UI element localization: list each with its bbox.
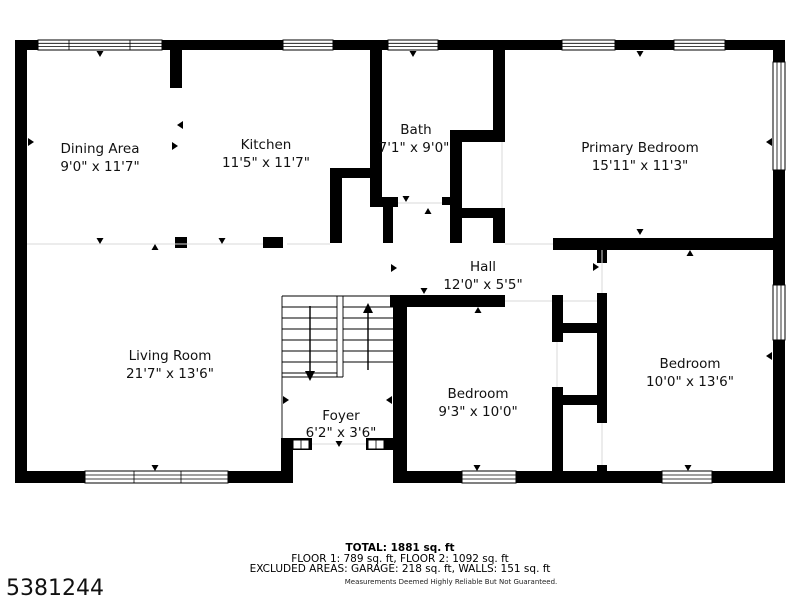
room-dims-primary: 15'11" x 11'3" [592, 158, 689, 174]
entry-sidelight-right [368, 440, 384, 449]
window-bedroom1 [462, 471, 516, 483]
stairs-down-arrow-icon [305, 306, 315, 381]
walls [15, 40, 785, 483]
room-dims-hall: 12'0" x 5'5" [443, 277, 522, 293]
window-primary-2 [674, 40, 725, 50]
room-dims-dining: 9'0" x 11'7" [60, 159, 139, 175]
windows [38, 40, 785, 483]
footer-excluded: EXCLUDED AREAS: GARAGE: 218 sq. ft, WALL… [250, 563, 551, 575]
room-label-dining: Dining Area [61, 141, 140, 157]
floorplan-page: Dining Area 9'0" x 11'7" Kitchen 11'5" x… [0, 0, 800, 600]
stairs-up-arrow-icon [363, 303, 373, 370]
room-label-kitchen: Kitchen [241, 137, 292, 153]
room-label-living: Living Room [129, 348, 212, 364]
room-dims-bedroom2: 10'0" x 13'6" [646, 374, 734, 390]
window-living [85, 471, 228, 483]
window-bedroom2 [662, 471, 712, 483]
footer-disclaimer: Measurements Deemed Highly Reliable But … [345, 578, 558, 586]
room-label-bath: Bath [400, 122, 431, 138]
floorplan-drawing: Dining Area 9'0" x 11'7" Kitchen 11'5" x… [0, 0, 800, 600]
window-bath [388, 40, 438, 50]
room-label-primary: Primary Bedroom [581, 140, 699, 156]
window-primary-side [773, 62, 785, 170]
room-label-hall: Hall [470, 259, 496, 275]
window-bedroom2-side [773, 285, 785, 340]
room-label-foyer: Foyer [322, 408, 360, 424]
room-dims-bedroom1: 9'3" x 10'0" [438, 404, 517, 420]
room-dims-bath: 7'1" x 9'0" [379, 140, 450, 156]
room-dims-foyer: 6'2" x 3'6" [306, 425, 377, 441]
room-label-bedroom1: Bedroom [447, 386, 508, 402]
listing-id: 5381244 [6, 576, 104, 600]
window-primary-1 [562, 40, 615, 50]
footer: TOTAL: 1881 sq. ft FLOOR 1: 789 sq. ft, … [250, 542, 558, 586]
window-dining-kitchen [38, 40, 162, 50]
room-dims-living: 21'7" x 13'6" [126, 366, 214, 382]
entry-sidelight-left [293, 440, 309, 449]
room-label-bedroom2: Bedroom [659, 356, 720, 372]
room-dims-kitchen: 11'5" x 11'7" [222, 155, 310, 171]
window-kitchen [283, 40, 333, 50]
